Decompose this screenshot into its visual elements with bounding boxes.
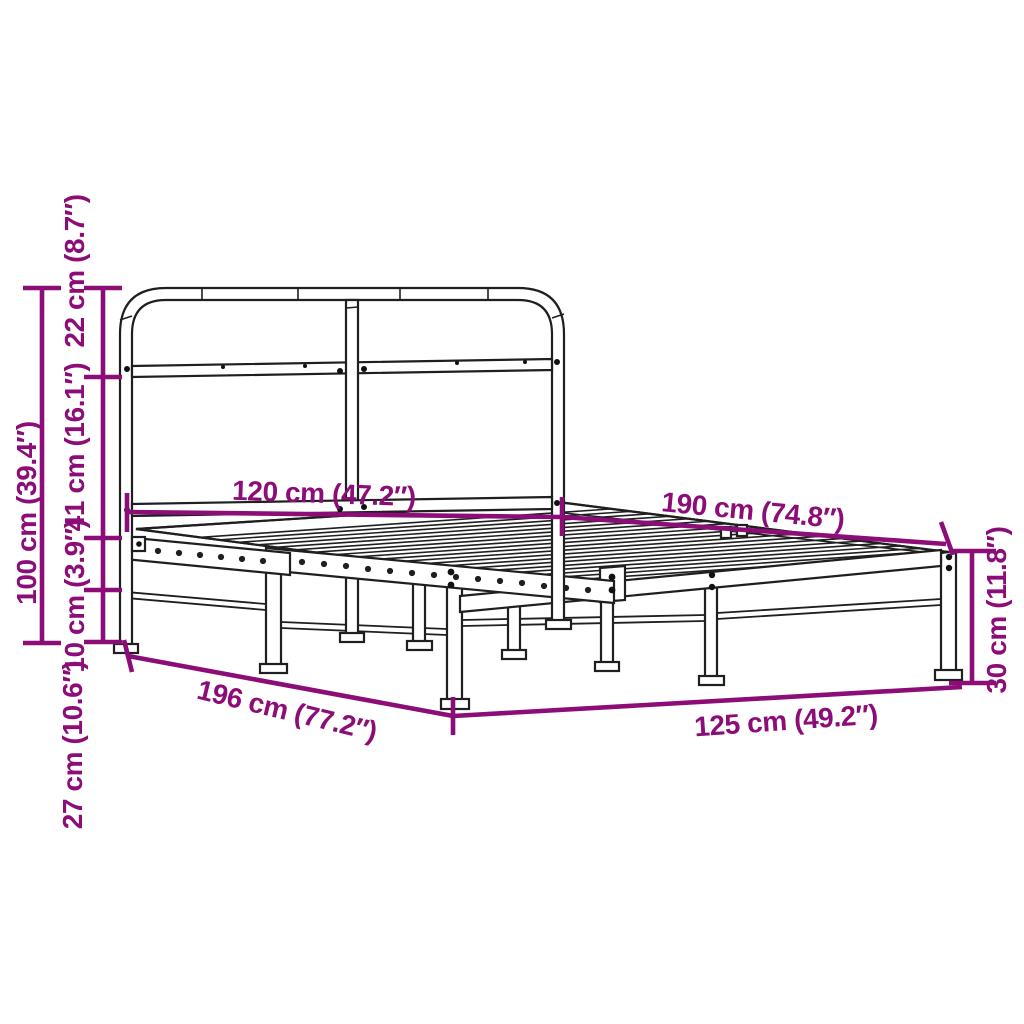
bed-frame xyxy=(90,288,1024,709)
product-dimension-diagram: 100 cm (39.4″) 22 cm (8.7″) 41 cm (16.1″… xyxy=(0,0,1024,1024)
dim-label-headboard-middle-section: 41 cm (16.1″) xyxy=(59,363,91,532)
dim-label-side-rail-height: 10 cm (3.9″) xyxy=(59,519,91,672)
dim-label-under-bed-clearance: 27 cm (10.6″) xyxy=(57,661,89,830)
dim-label-headboard-top-section: 22 cm (8.7″) xyxy=(59,194,91,347)
tube-joint-marks xyxy=(120,288,564,320)
dim-label-mattress-width: 120 cm (47.2″) xyxy=(232,475,417,513)
bed-frame-line-art xyxy=(0,0,1024,1024)
leg-foot xyxy=(546,620,571,629)
dim-label-foot-end-height: 30 cm (11.8″) xyxy=(981,527,1013,694)
headboard-crossbar xyxy=(132,359,552,377)
dim-label-total-height: 100 cm (39.4″) xyxy=(11,421,43,605)
